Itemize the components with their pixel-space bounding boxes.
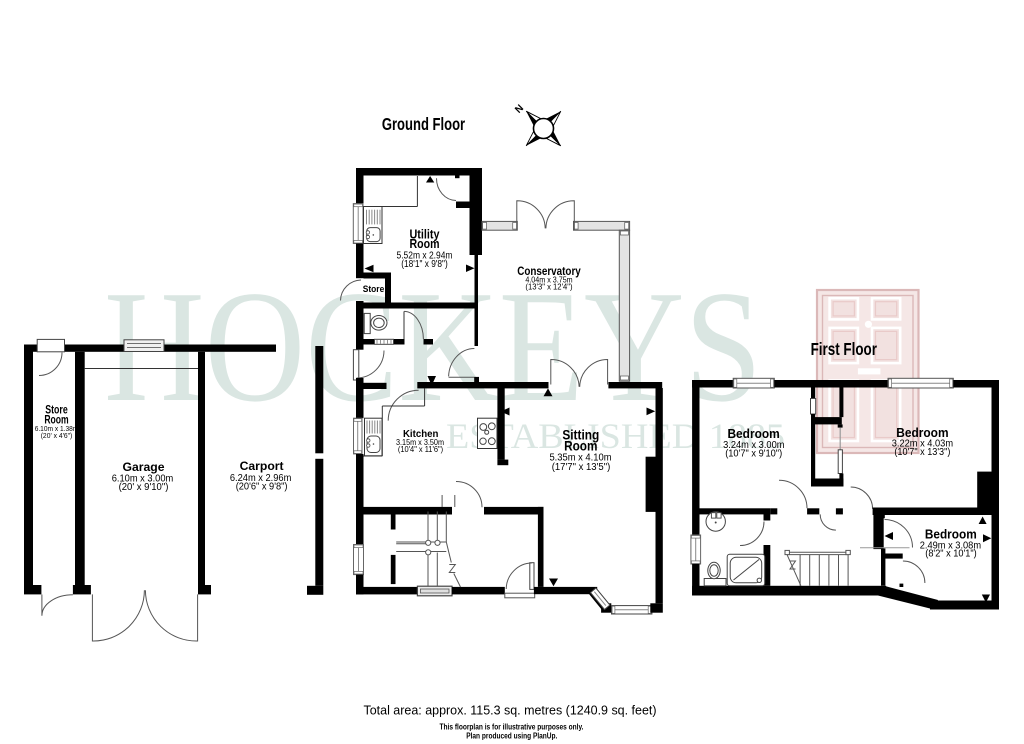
svg-text:First Floor: First Floor (811, 339, 878, 359)
svg-text:Carport: Carport (240, 459, 284, 473)
svg-text:(18'1" x 9'8"): (18'1" x 9'8") (401, 259, 448, 270)
svg-text:(10'7" x 13'3"): (10'7" x 13'3") (894, 447, 950, 458)
svg-text:Plan produced using PlanUp.: Plan produced using PlanUp. (466, 731, 557, 740)
svg-text:Bedroom: Bedroom (727, 427, 779, 441)
svg-text:Garage: Garage (123, 460, 165, 474)
svg-text:Room: Room (410, 236, 440, 251)
svg-text:(20'6" x 9'8"): (20'6" x 9'8") (236, 482, 288, 493)
svg-text:(10'7" x 9'10"): (10'7" x 9'10") (725, 448, 782, 459)
svg-text:This floorplan is for illustra: This floorplan is for illustrative purpo… (440, 722, 584, 731)
svg-text:(8'2" x 10'1"): (8'2" x 10'1") (925, 549, 977, 560)
svg-text:(10'4" x 11'6"): (10'4" x 11'6") (398, 445, 444, 454)
svg-text:(20' x 4'6"): (20' x 4'6") (41, 431, 73, 440)
svg-text:(17'7" x 13'5"): (17'7" x 13'5") (552, 462, 611, 473)
svg-text:Store: Store (363, 284, 385, 294)
svg-text:(13'3" x 12'4"): (13'3" x 12'4") (525, 281, 572, 291)
svg-text:Bedroom: Bedroom (925, 528, 977, 542)
svg-text:(20' x 9'10"): (20' x 9'10") (119, 482, 169, 493)
svg-text:Room: Room (564, 437, 597, 453)
svg-text:Total area: approx. 115.3 sq.: Total area: approx. 115.3 sq. metres (12… (364, 702, 657, 717)
svg-text:Ground Floor: Ground Floor (382, 114, 465, 134)
